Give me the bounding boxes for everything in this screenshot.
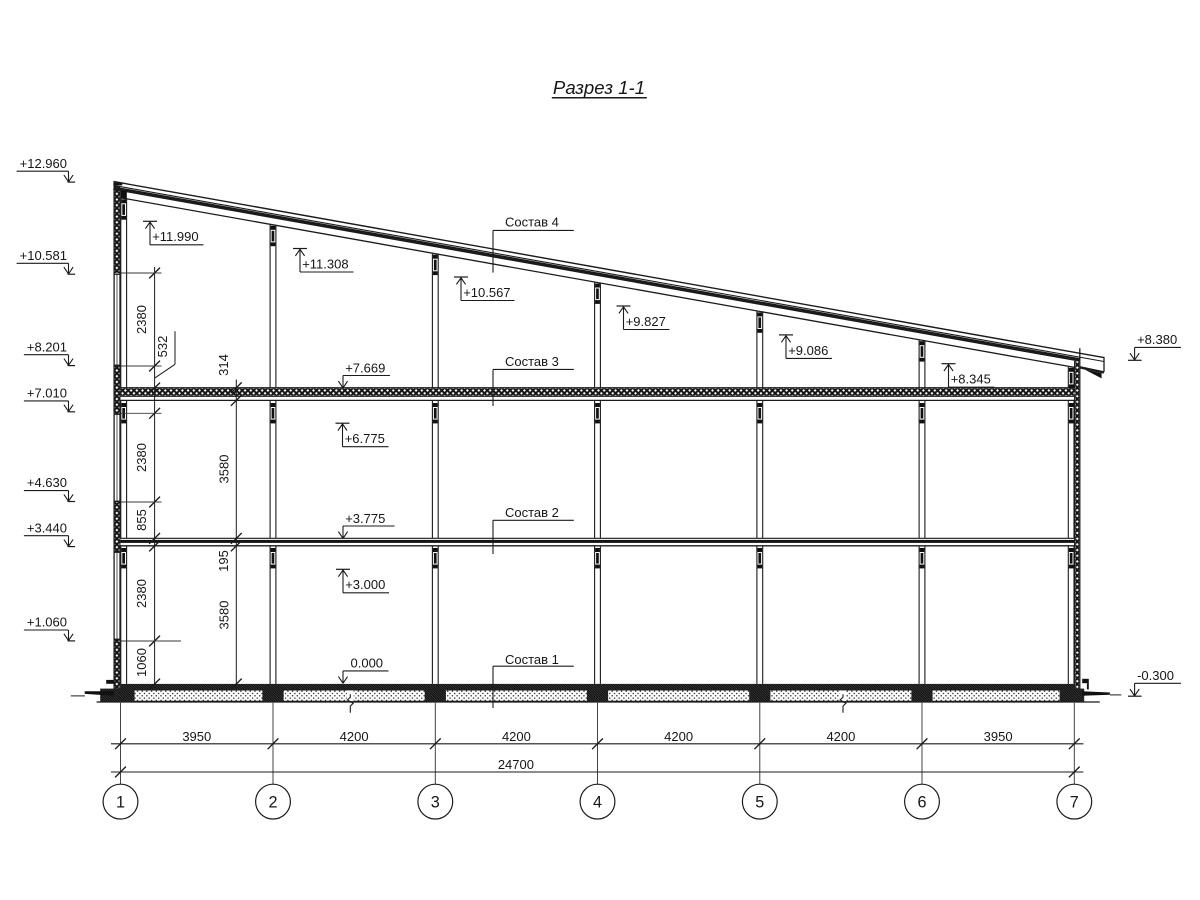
- svg-text:+10.567: +10.567: [463, 285, 510, 300]
- svg-text:+1.060: +1.060: [27, 615, 67, 630]
- svg-text:532: 532: [155, 336, 170, 358]
- svg-text:+11.308: +11.308: [302, 256, 348, 271]
- svg-text:Состав 1: Состав 1: [505, 652, 559, 667]
- svg-text:2380: 2380: [134, 305, 149, 334]
- svg-text:+12.960: +12.960: [20, 156, 67, 171]
- svg-text:+8.201: +8.201: [27, 339, 67, 354]
- svg-text:6: 6: [917, 793, 926, 811]
- svg-text:855: 855: [134, 509, 149, 531]
- svg-text:+10.581: +10.581: [20, 248, 67, 263]
- svg-text:314: 314: [216, 354, 231, 376]
- svg-text:3: 3: [431, 793, 440, 811]
- svg-text:+3.775: +3.775: [345, 511, 385, 526]
- svg-text:2380: 2380: [134, 579, 149, 608]
- svg-text:195: 195: [216, 550, 231, 572]
- svg-text:3580: 3580: [217, 601, 232, 630]
- svg-text:1060: 1060: [134, 648, 149, 677]
- svg-text:Состав 2: Состав 2: [505, 505, 559, 520]
- svg-text:4200: 4200: [826, 729, 855, 744]
- svg-text:Состав 4: Состав 4: [505, 214, 559, 229]
- svg-text:+4.630: +4.630: [27, 475, 67, 490]
- svg-text:+7.010: +7.010: [27, 386, 67, 401]
- svg-text:+9.827: +9.827: [626, 314, 666, 329]
- svg-text:24700: 24700: [498, 757, 534, 772]
- svg-text:4200: 4200: [502, 729, 531, 744]
- svg-text:4: 4: [593, 793, 602, 811]
- svg-text:3950: 3950: [984, 729, 1013, 744]
- svg-text:+3.440: +3.440: [27, 520, 67, 535]
- svg-text:+7.669: +7.669: [345, 360, 385, 375]
- svg-text:1: 1: [116, 793, 125, 811]
- svg-text:4200: 4200: [664, 729, 693, 744]
- svg-text:+11.990: +11.990: [152, 229, 198, 244]
- svg-text:3580: 3580: [217, 455, 232, 484]
- svg-text:Разрез 1-1: Разрез 1-1: [553, 77, 645, 98]
- svg-text:0.000: 0.000: [351, 656, 384, 671]
- svg-text:+8.380: +8.380: [1137, 332, 1177, 347]
- svg-text:2: 2: [268, 793, 277, 811]
- svg-text:+6.775: +6.775: [345, 431, 385, 446]
- svg-text:-0.300: -0.300: [1137, 668, 1174, 683]
- svg-text:2380: 2380: [134, 443, 149, 472]
- svg-text:Состав 3: Состав 3: [505, 354, 559, 369]
- svg-text:+9.086: +9.086: [788, 343, 828, 358]
- svg-text:+3.000: +3.000: [345, 577, 385, 592]
- svg-text:3950: 3950: [182, 729, 211, 744]
- svg-text:5: 5: [755, 793, 764, 811]
- svg-text:7: 7: [1070, 793, 1079, 811]
- svg-text:+8.345: +8.345: [951, 372, 991, 387]
- svg-text:4200: 4200: [340, 729, 369, 744]
